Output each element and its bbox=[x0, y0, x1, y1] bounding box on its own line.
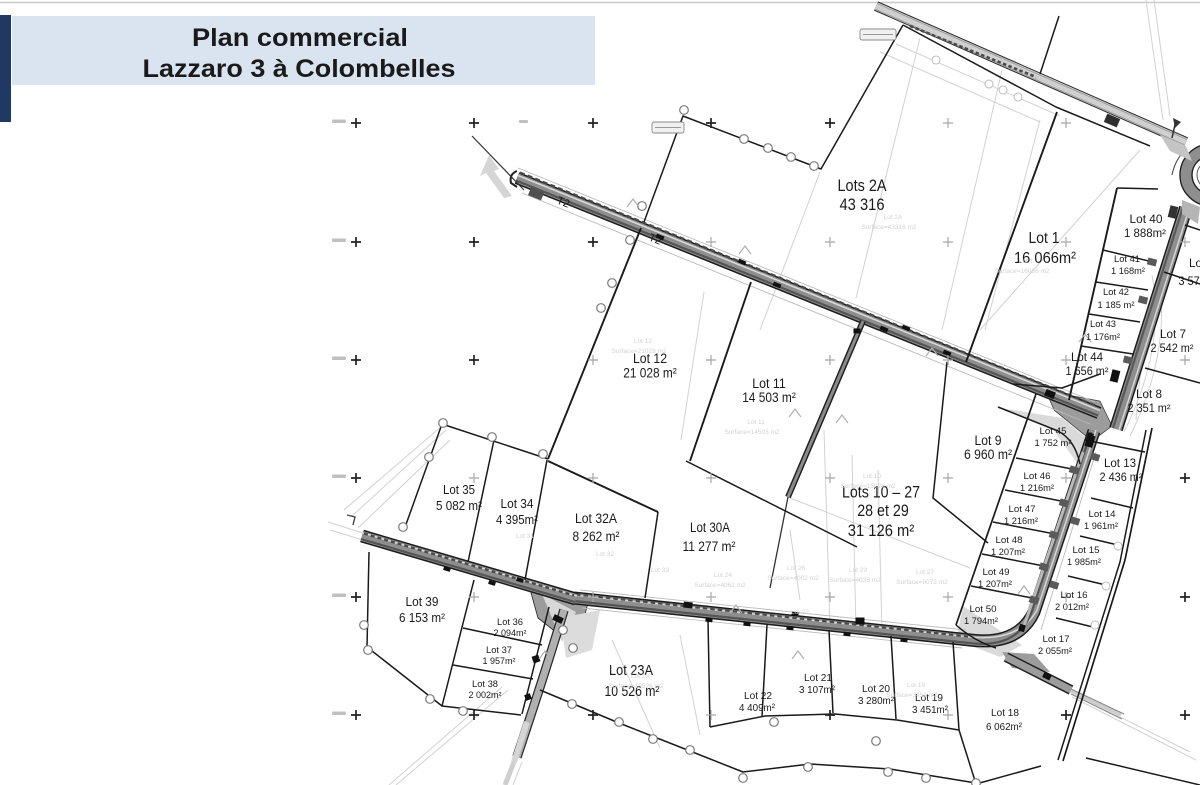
svg-text:Lot 27: Lot 27 bbox=[916, 569, 934, 576]
svg-text:Lot 28: Lot 28 bbox=[787, 565, 805, 572]
svg-text:3 451m²: 3 451m² bbox=[912, 705, 949, 716]
svg-text:Lot 17: Lot 17 bbox=[1043, 634, 1070, 645]
svg-text:2 094m²: 2 094m² bbox=[494, 628, 527, 638]
svg-text:Lot 2A: Lot 2A bbox=[884, 214, 903, 221]
svg-text:43 316: 43 316 bbox=[840, 195, 885, 214]
svg-text:Lot 1: Lot 1 bbox=[1029, 230, 1060, 247]
svg-text:31 126 m²: 31 126 m² bbox=[848, 521, 915, 540]
svg-text:Lot 41: Lot 41 bbox=[1114, 254, 1140, 265]
svg-text:Lot 44: Lot 44 bbox=[1071, 352, 1104, 364]
svg-text:1 957m²: 1 957m² bbox=[483, 656, 516, 666]
svg-text:Lot 32A: Lot 32A bbox=[575, 511, 617, 526]
svg-text:Surface=21028 m2: Surface=21028 m2 bbox=[611, 348, 666, 355]
svg-text:Lot 3: Lot 3 bbox=[1189, 258, 1200, 270]
svg-text:Lot 40: Lot 40 bbox=[1130, 214, 1163, 226]
svg-text:Lot 22: Lot 22 bbox=[791, 609, 809, 616]
svg-text:Surface=14503 m2: Surface=14503 m2 bbox=[724, 429, 779, 436]
svg-text:Lot 33: Lot 33 bbox=[651, 567, 669, 574]
svg-text:Lot 35: Lot 35 bbox=[443, 482, 475, 497]
svg-text:Lot 14: Lot 14 bbox=[1089, 509, 1116, 520]
svg-text:Lot 43: Lot 43 bbox=[1090, 319, 1116, 330]
svg-text:1 752 m²: 1 752 m² bbox=[1035, 438, 1072, 449]
svg-text:28 et 29: 28 et 29 bbox=[857, 501, 909, 520]
svg-text:Lot 11: Lot 11 bbox=[747, 419, 765, 426]
svg-text:2 012m²: 2 012m² bbox=[1055, 602, 1089, 613]
svg-text:Lot 21: Lot 21 bbox=[804, 673, 832, 684]
svg-text:Lot 48: Lot 48 bbox=[996, 535, 1023, 546]
svg-text:6 062m²: 6 062m² bbox=[986, 722, 1023, 733]
svg-text:Lot 34: Lot 34 bbox=[501, 496, 534, 511]
svg-text:Lot 38: Lot 38 bbox=[472, 679, 498, 689]
svg-text:Lot 24: Lot 24 bbox=[714, 572, 732, 579]
svg-text:1 888m²: 1 888m² bbox=[1124, 228, 1166, 240]
svg-text:Lot 19: Lot 19 bbox=[907, 682, 925, 689]
svg-text:5 082 m²: 5 082 m² bbox=[436, 498, 483, 513]
svg-text:1 207m²: 1 207m² bbox=[991, 547, 1025, 558]
svg-text:1 216m²: 1 216m² bbox=[1020, 483, 1054, 494]
svg-text:Surface=15028 m2: Surface=15028 m2 bbox=[840, 483, 895, 490]
svg-text:Lot 49: Lot 49 bbox=[983, 567, 1010, 578]
svg-text:1 168m²: 1 168m² bbox=[1111, 266, 1145, 277]
svg-text:Lot 18: Lot 18 bbox=[991, 708, 1019, 719]
svg-text:2 436 m²: 2 436 m² bbox=[1100, 472, 1143, 484]
svg-text:2 542 m²: 2 542 m² bbox=[1151, 343, 1194, 355]
svg-text:Lot 9: Lot 9 bbox=[975, 433, 1002, 448]
svg-text:Lazzaro 3 à Colombelles: Lazzaro 3 à Colombelles bbox=[143, 55, 456, 83]
svg-text:Surface=3451 m2: Surface=3451 m2 bbox=[886, 692, 938, 699]
svg-text:Surface=10526 m2: Surface=10526 m2 bbox=[608, 683, 663, 690]
svg-text:Lot 50: Lot 50 bbox=[970, 604, 997, 615]
svg-text:1 216m²: 1 216m² bbox=[1004, 516, 1038, 527]
svg-text:8 262 m²: 8 262 m² bbox=[573, 529, 620, 544]
svg-text:Lot 16: Lot 16 bbox=[1061, 590, 1088, 601]
svg-text:Lot 37: Lot 37 bbox=[486, 645, 512, 655]
svg-text:1 176m²: 1 176m² bbox=[1086, 332, 1120, 343]
svg-text:1 185 m²: 1 185 m² bbox=[1098, 300, 1135, 311]
svg-text:Surface=4002 m2: Surface=4002 m2 bbox=[767, 575, 819, 582]
svg-text:Lot 12: Lot 12 bbox=[634, 338, 652, 345]
svg-text:1 794m²: 1 794m² bbox=[964, 616, 998, 627]
svg-text:Lot 29: Lot 29 bbox=[849, 567, 867, 574]
svg-text:4 409m²: 4 409m² bbox=[739, 703, 776, 714]
svg-text:2 002m²: 2 002m² bbox=[469, 690, 502, 700]
svg-text:Lot 32: Lot 32 bbox=[596, 551, 614, 558]
svg-text:Lot 31: Lot 31 bbox=[516, 533, 534, 540]
svg-text:Lots 2A: Lots 2A bbox=[838, 176, 888, 195]
svg-text:Lot 10: Lot 10 bbox=[863, 473, 881, 480]
svg-text:Lot 46: Lot 46 bbox=[1024, 471, 1051, 482]
svg-text:Lot 8: Lot 8 bbox=[1136, 389, 1162, 401]
svg-text:Lot 47: Lot 47 bbox=[1009, 504, 1036, 515]
svg-text:2 351 m²: 2 351 m² bbox=[1128, 403, 1171, 415]
svg-text:1 656 m²: 1 656 m² bbox=[1066, 366, 1109, 378]
svg-text:3 573 m²: 3 573 m² bbox=[1179, 276, 1200, 288]
svg-text:6 960 m²: 6 960 m² bbox=[964, 447, 1012, 462]
svg-text:3 107m²: 3 107m² bbox=[799, 685, 836, 696]
svg-text:Surface=43316 m2: Surface=43316 m2 bbox=[861, 224, 916, 231]
svg-text:2 055m²: 2 055m² bbox=[1038, 646, 1072, 657]
svg-text:4 395m²: 4 395m² bbox=[496, 512, 539, 527]
svg-text:Lot 42: Lot 42 bbox=[1103, 287, 1129, 298]
svg-text:Lot 15: Lot 15 bbox=[1073, 545, 1100, 556]
svg-text:1 985m²: 1 985m² bbox=[1067, 557, 1101, 568]
svg-text:Lot 22: Lot 22 bbox=[744, 691, 772, 702]
svg-text:Lot 36: Lot 36 bbox=[497, 617, 523, 627]
svg-text:1 207m²: 1 207m² bbox=[978, 579, 1012, 590]
svg-text:11 277 m²: 11 277 m² bbox=[683, 539, 736, 554]
svg-text:Surface=6073 m2: Surface=6073 m2 bbox=[896, 579, 948, 586]
svg-text:Surface=4062 m2: Surface=4062 m2 bbox=[694, 582, 746, 589]
svg-text:Surface=4035 m2: Surface=4035 m2 bbox=[829, 577, 881, 584]
svg-text:Plan commercial: Plan commercial bbox=[192, 24, 408, 52]
svg-text:Lot 39: Lot 39 bbox=[406, 594, 439, 609]
svg-text:14 503 m²: 14 503 m² bbox=[742, 390, 796, 405]
svg-text:Lot 30A: Lot 30A bbox=[690, 520, 730, 535]
svg-text:6 153 m²: 6 153 m² bbox=[399, 610, 446, 625]
svg-text:Lot 7: Lot 7 bbox=[1160, 329, 1186, 341]
svg-text:Lot 1: Lot 1 bbox=[1019, 258, 1034, 265]
svg-text:1 961m²: 1 961m² bbox=[1084, 521, 1118, 532]
svg-text:Lot 23: Lot 23 bbox=[631, 673, 649, 680]
svg-text:21 028 m²: 21 028 m² bbox=[623, 366, 677, 381]
svg-text:Lot 11: Lot 11 bbox=[752, 376, 786, 391]
svg-text:Surface=16066 m2: Surface=16066 m2 bbox=[994, 268, 1049, 275]
svg-text:Lot 45: Lot 45 bbox=[1040, 426, 1067, 437]
svg-text:Lot 13: Lot 13 bbox=[1104, 458, 1136, 470]
